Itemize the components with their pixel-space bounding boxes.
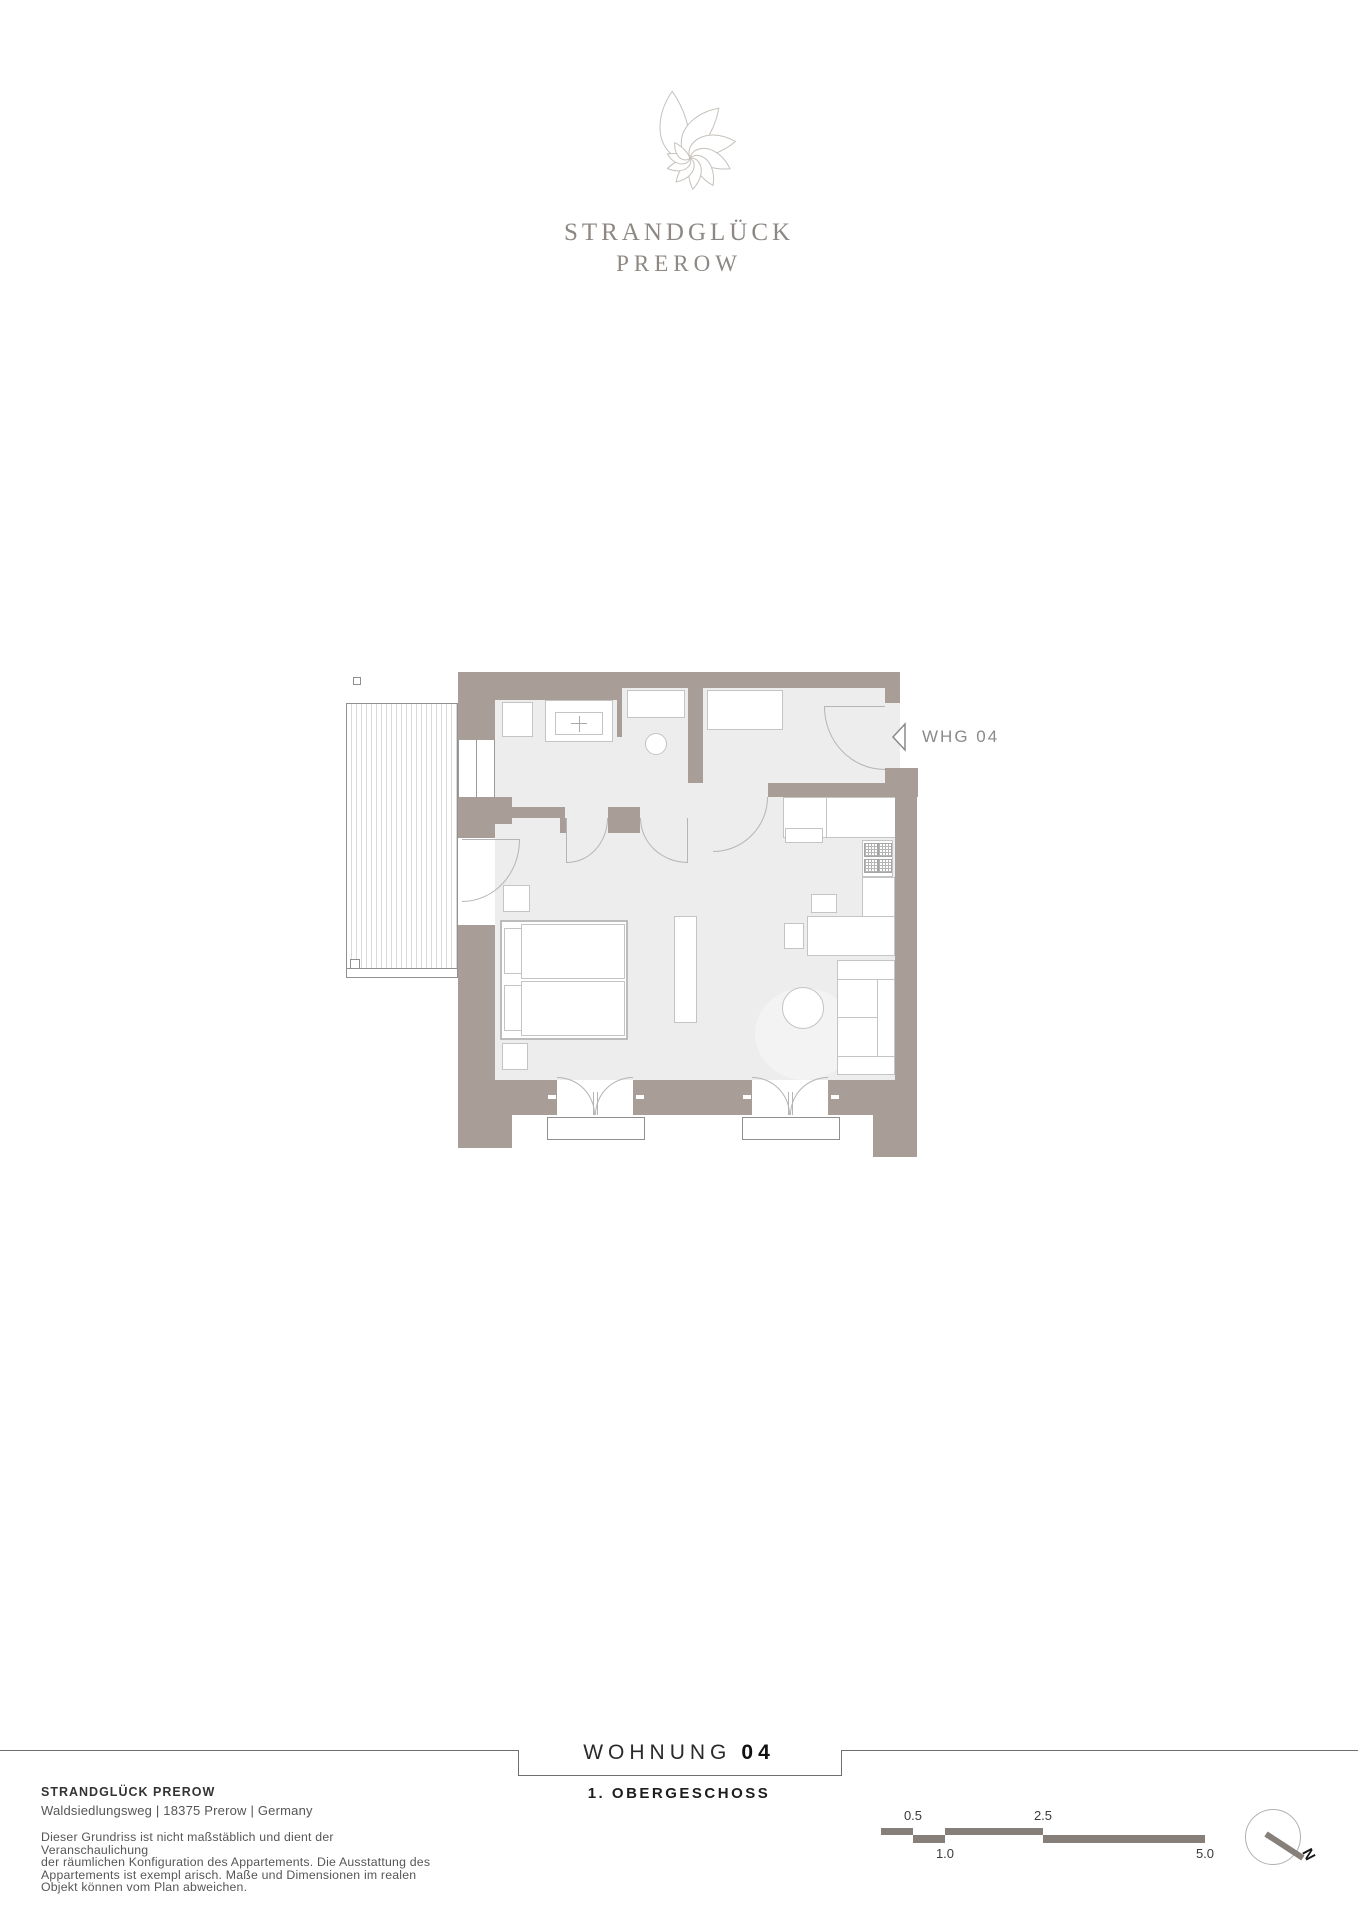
wall-segment <box>688 687 703 783</box>
sink-icon <box>555 712 603 735</box>
logo-flower-icon <box>630 80 750 230</box>
brochure-page: STRANDGLÜCK PREROW <box>0 0 1358 1920</box>
balcony-deck <box>346 703 458 978</box>
wall-segment <box>608 807 640 833</box>
pillow <box>504 928 522 974</box>
french-door-arc <box>557 1077 595 1115</box>
window <box>458 740 495 797</box>
wall-segment <box>458 925 495 1115</box>
washing-machine <box>502 702 533 737</box>
wall-segment <box>495 807 565 818</box>
nightstand <box>502 1043 528 1070</box>
scale-bar-segment <box>913 1835 945 1843</box>
footer-address: Waldsiedlungsweg | 18375 Prerow | German… <box>41 1803 313 1818</box>
french-door-arc <box>790 1077 828 1115</box>
toilet <box>645 733 667 755</box>
pillow <box>504 985 522 1031</box>
scale-label: 5.0 <box>1183 1846 1227 1861</box>
door-leaf <box>597 1092 598 1115</box>
round-table <box>782 987 824 1029</box>
window-sill <box>547 1117 645 1140</box>
door-jamb-tick <box>548 1095 556 1099</box>
wall-segment <box>617 688 622 737</box>
scale-bar-segment <box>945 1828 1043 1835</box>
burner-icon <box>864 859 878 873</box>
burner-icon <box>864 843 878 857</box>
desk-shelf <box>811 894 837 913</box>
french-door-arc <box>595 1077 633 1115</box>
mattress <box>521 981 625 1036</box>
door-jamb-tick <box>636 1095 644 1099</box>
desk-chair <box>784 923 804 949</box>
door-leaf <box>792 1092 793 1115</box>
unit-label: WHG 04 <box>890 720 999 754</box>
door-jamb-tick <box>831 1095 839 1099</box>
north-label: N <box>1298 1846 1318 1864</box>
wall-segment <box>458 672 622 700</box>
sideboard <box>674 916 697 1023</box>
door-jamb-tick <box>743 1095 751 1099</box>
wall-segment <box>458 1115 512 1148</box>
door-leaf <box>593 1092 594 1115</box>
wall-segment <box>895 783 917 1080</box>
french-door-arc <box>752 1077 790 1115</box>
plan-marker-balcony <box>350 959 360 969</box>
sofa <box>837 960 895 1075</box>
wardrobe <box>707 690 783 730</box>
wall-segment <box>633 1080 752 1115</box>
balcony-rail <box>347 968 457 977</box>
page-title: WOHNUNG04 <box>0 1741 1358 1765</box>
disclaimer-line: Objekt können vom Plan abweichen. <box>41 1881 441 1894</box>
scale-bar-segment <box>1043 1835 1205 1843</box>
wall-segment <box>885 672 900 703</box>
footer-company: STRANDGLÜCK PREROW <box>41 1785 215 1799</box>
scale-label: 2.5 <box>1021 1808 1065 1823</box>
plan-marker-top <box>353 677 361 685</box>
logo-title: STRANDGLÜCK <box>0 219 1358 247</box>
page-title-number: 04 <box>741 1741 774 1764</box>
mattress <box>521 924 625 979</box>
disclaimer-line: der räumlichen Konfiguration des Apparte… <box>41 1856 441 1869</box>
footer-disclaimer: Dieser Grundriss ist nicht maßstäblich u… <box>41 1831 441 1894</box>
desk <box>807 916 895 956</box>
cooktop <box>862 840 893 877</box>
wall-segment <box>768 783 913 797</box>
page-title-text: WOHNUNG <box>583 1741 731 1764</box>
nightstand <box>503 885 530 912</box>
burner-icon <box>878 843 892 857</box>
wall-segment <box>622 672 885 688</box>
kitchen-cart <box>785 828 823 843</box>
disclaimer-line: Dieser Grundriss ist nicht maßstäblich u… <box>41 1831 441 1856</box>
window-sill <box>742 1117 840 1140</box>
unit-label-text: WHG 04 <box>922 727 999 747</box>
scale-label: 1.0 <box>923 1846 967 1861</box>
logo-subtitle: PREROW <box>0 251 1358 277</box>
scale-bar-segment <box>881 1828 913 1835</box>
scale-label: 0.5 <box>891 1808 935 1823</box>
wall-segment <box>458 797 495 838</box>
entry-direction-icon <box>890 722 908 752</box>
burner-icon <box>878 859 892 873</box>
door-leaf <box>788 1092 789 1115</box>
floor-plan <box>340 665 960 1195</box>
shower-tray <box>627 690 685 718</box>
